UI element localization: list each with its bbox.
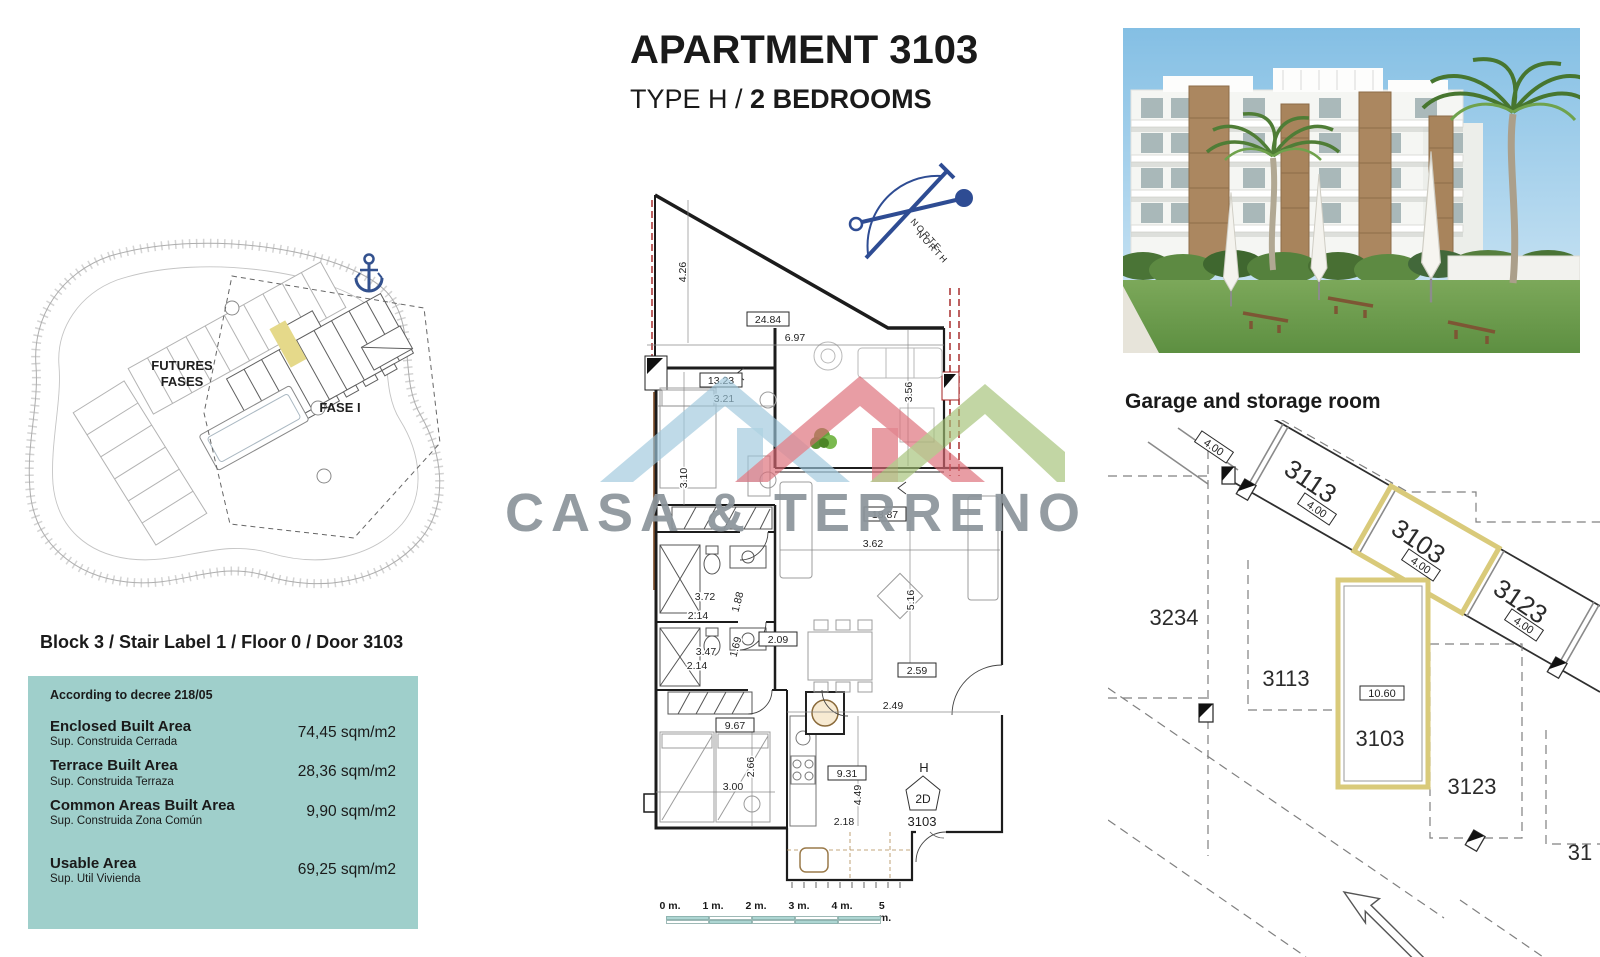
site-plan-svg: FUTURES FASES FASE I: [22, 238, 457, 603]
building-photo: [1123, 28, 1580, 353]
futures-fases-label-1: FUTURES: [151, 358, 213, 373]
entry-h: H: [919, 760, 928, 775]
site-plan: FUTURES FASES FASE I: [22, 238, 457, 603]
apartment-floor-plan: NORTE NORTH 24.84 6.97 4.26 13.23 3.21 3…: [600, 160, 1020, 910]
garage-plan: 3113 4.00 3103 4.00 3123 4.00 4.00 3234 …: [1108, 420, 1600, 957]
page-subtitle: TYPE H / 2 BEDROOMS: [630, 84, 932, 115]
dim-3-62: 3.62: [863, 538, 884, 550]
dim-2-14-b: 2.14: [687, 660, 708, 672]
dim-4-49: 4.49: [852, 785, 864, 806]
dim-3-56: 3.56: [903, 382, 915, 403]
area-label-es: Sup. Construida Terraza: [50, 776, 178, 788]
area-value: 69,25 sqm/m2: [298, 861, 396, 879]
dim-1-88: 1.88: [730, 590, 747, 613]
north-compass: NORTE NORTH: [850, 164, 973, 266]
area-label-en: Terrace Built Area: [50, 757, 178, 774]
storage-room-3103-highlight: [1338, 580, 1428, 787]
area-label-en: Enclosed Built Area: [50, 718, 191, 735]
dim-3-21: 3.21: [714, 393, 735, 405]
garage-plan-svg: 3113 4.00 3103 4.00 3123 4.00 4.00 3234 …: [1108, 420, 1600, 957]
area-panel: According to decree 218/05 Enclosed Buil…: [28, 676, 418, 929]
storage-dim-1060: 10.60: [1368, 688, 1396, 700]
building-photo-illustration: [1123, 28, 1580, 353]
dim-2-49: 2.49: [883, 700, 904, 712]
dim-2-18: 2.18: [834, 816, 855, 828]
storage-3113: 3113: [1262, 666, 1309, 691]
terrace-furniture: [814, 342, 942, 442]
dim-13-23: 13.23: [708, 375, 734, 387]
walls: [644, 195, 1002, 880]
area-label-es: Sup. Util Vivienda: [50, 873, 141, 885]
dim-9-67: 9.67: [725, 720, 746, 732]
bathroom-fixtures: [660, 545, 766, 686]
scale-label-0: 0 m.: [659, 900, 680, 912]
dim-9-31: 9.31: [837, 768, 858, 780]
area-value: 74,45 sqm/m2: [298, 724, 396, 742]
road-direction-arrow: [1331, 882, 1442, 957]
scale-bar-row-lower: [666, 920, 881, 924]
storage-31-partial: 31: [1568, 840, 1592, 865]
area-row-usable: Usable Area Sup. Util Vivienda 69,25 sqm…: [50, 855, 396, 885]
storage-3103: 3103: [1356, 726, 1405, 751]
dim-3-10: 3.10: [678, 468, 690, 489]
lawn: [1123, 280, 1580, 353]
area-label-en: Common Areas Built Area: [50, 797, 235, 814]
dim-24-84: 24.84: [755, 314, 781, 326]
area-row-enclosed: Enclosed Built Area Sup. Construida Cerr…: [50, 718, 396, 748]
storage-3234: 3234: [1150, 605, 1199, 630]
dim-3-72: 3.72: [695, 591, 716, 603]
scale-label-1: 1 m.: [702, 900, 723, 912]
dim-2-66: 2.66: [745, 757, 757, 778]
futures-fases-label-2: FASES: [161, 374, 204, 389]
area-row-common: Common Areas Built Area Sup. Construida …: [50, 797, 396, 827]
entry-door-label: H 2D 3103: [906, 760, 944, 838]
area-row-terrace: Terrace Built Area Sup. Construida Terra…: [50, 757, 396, 787]
scale-label-2: 2 m.: [745, 900, 766, 912]
subtitle-bedrooms: 2 BEDROOMS: [750, 84, 932, 114]
dim-2-09: 2.09: [768, 634, 789, 646]
floor-plan-svg: NORTE NORTH 24.84 6.97 4.26 13.23 3.21 3…: [600, 160, 1020, 910]
scale-bar: 0 m. 1 m. 2 m. 3 m. 4 m. 5 m.: [666, 900, 896, 932]
area-value: 28,36 sqm/m2: [298, 763, 396, 781]
entry-type-2d: 2D: [915, 792, 931, 806]
block-heading: Block 3 / Stair Label 1 / Floor 0 / Door…: [40, 632, 403, 653]
scale-label-4: 4 m.: [831, 900, 852, 912]
entry-door-number: 3103: [908, 814, 937, 829]
dim-6-97: 6.97: [785, 332, 806, 344]
area-value: 9,90 sqm/m2: [306, 803, 396, 821]
storage-3123: 3123: [1448, 774, 1497, 799]
subtitle-type: TYPE H /: [630, 84, 743, 114]
furniture: [660, 388, 998, 822]
page-title: APARTMENT 3103: [630, 28, 978, 73]
dim-5-16: 5.16: [905, 590, 917, 611]
dim-2-14-a: 2.14: [688, 610, 709, 622]
scale-label-3: 3 m.: [788, 900, 809, 912]
area-label-en: Usable Area: [50, 855, 141, 872]
plan-sheet-page: APARTMENT 3103 TYPE H / 2 BEDROOMS: [0, 0, 1600, 957]
dim-4-26: 4.26: [677, 262, 689, 283]
area-label-es: Sup. Construida Cerrada: [50, 736, 191, 748]
dim-3-47: 3.47: [696, 646, 717, 658]
dim-3-00: 3.00: [723, 781, 744, 793]
garage-heading: Garage and storage room: [1125, 390, 1381, 414]
dim-18-87: 18.87: [872, 509, 898, 521]
decree-note: According to decree 218/05: [50, 688, 396, 702]
fase1-label: FASE I: [319, 400, 360, 415]
area-label-es: Sup. Construida Zona Común: [50, 815, 235, 827]
dim-2-59: 2.59: [907, 665, 928, 677]
plant-icon: [810, 428, 837, 449]
